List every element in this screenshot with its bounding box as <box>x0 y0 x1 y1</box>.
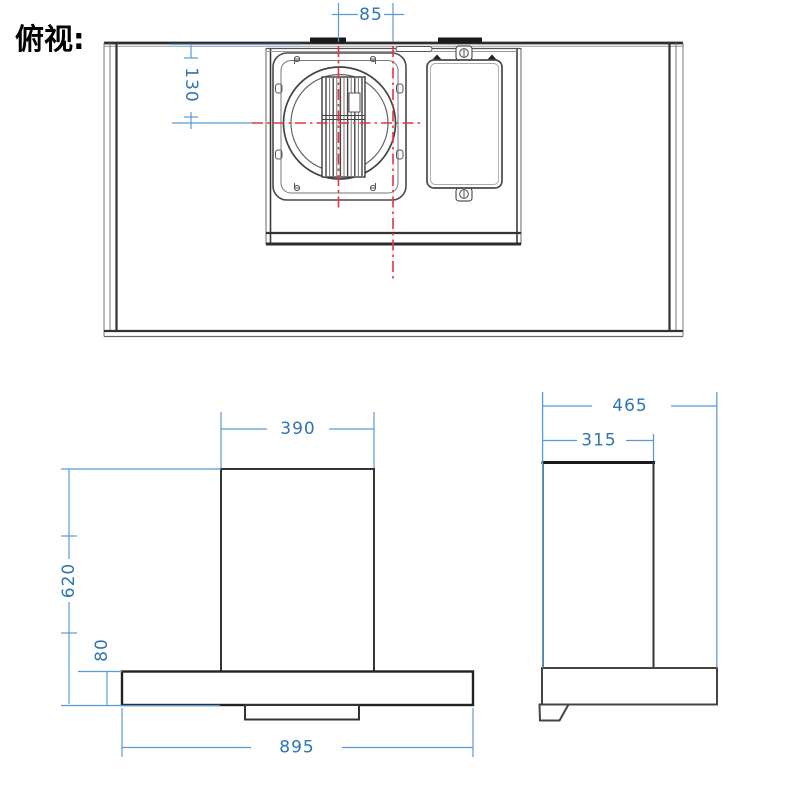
mounting-bar <box>396 47 432 52</box>
dim-390-label: 390 <box>280 419 315 439</box>
hanging-bracket-right <box>438 38 482 44</box>
front-view: 390 620 80 895 <box>59 412 473 758</box>
drawing-canvas: 俯视: <box>0 0 800 800</box>
chimney-duct-front <box>221 469 374 672</box>
dim-895-label: 895 <box>279 738 314 758</box>
fan-mounting-plate <box>273 53 406 200</box>
dimension-620 <box>61 469 221 704</box>
dim-85-label: 85 <box>359 5 383 25</box>
dim-465-label: 465 <box>612 396 647 416</box>
side-view: 465 315 <box>540 392 718 721</box>
top-view: 85 130 <box>104 3 683 337</box>
range-hood-dimension-drawing: 俯视: <box>0 0 800 800</box>
top-view-title: 俯视: <box>15 22 85 56</box>
front-lip-side <box>540 705 569 721</box>
hanging-bracket-left <box>310 38 346 44</box>
vent-grille <box>322 77 365 177</box>
hood-body-side <box>542 668 717 705</box>
dim-315-label: 315 <box>581 431 616 451</box>
dim-620-label: 620 <box>59 563 79 598</box>
bottom-panel-front <box>245 705 359 720</box>
grille-latch <box>349 93 360 112</box>
hood-body-front <box>122 672 473 706</box>
dim-80-label: 80 <box>92 638 112 662</box>
dim-130-label: 130 <box>181 67 201 102</box>
electrical-box <box>427 46 502 201</box>
chimney-duct-side <box>543 462 654 668</box>
